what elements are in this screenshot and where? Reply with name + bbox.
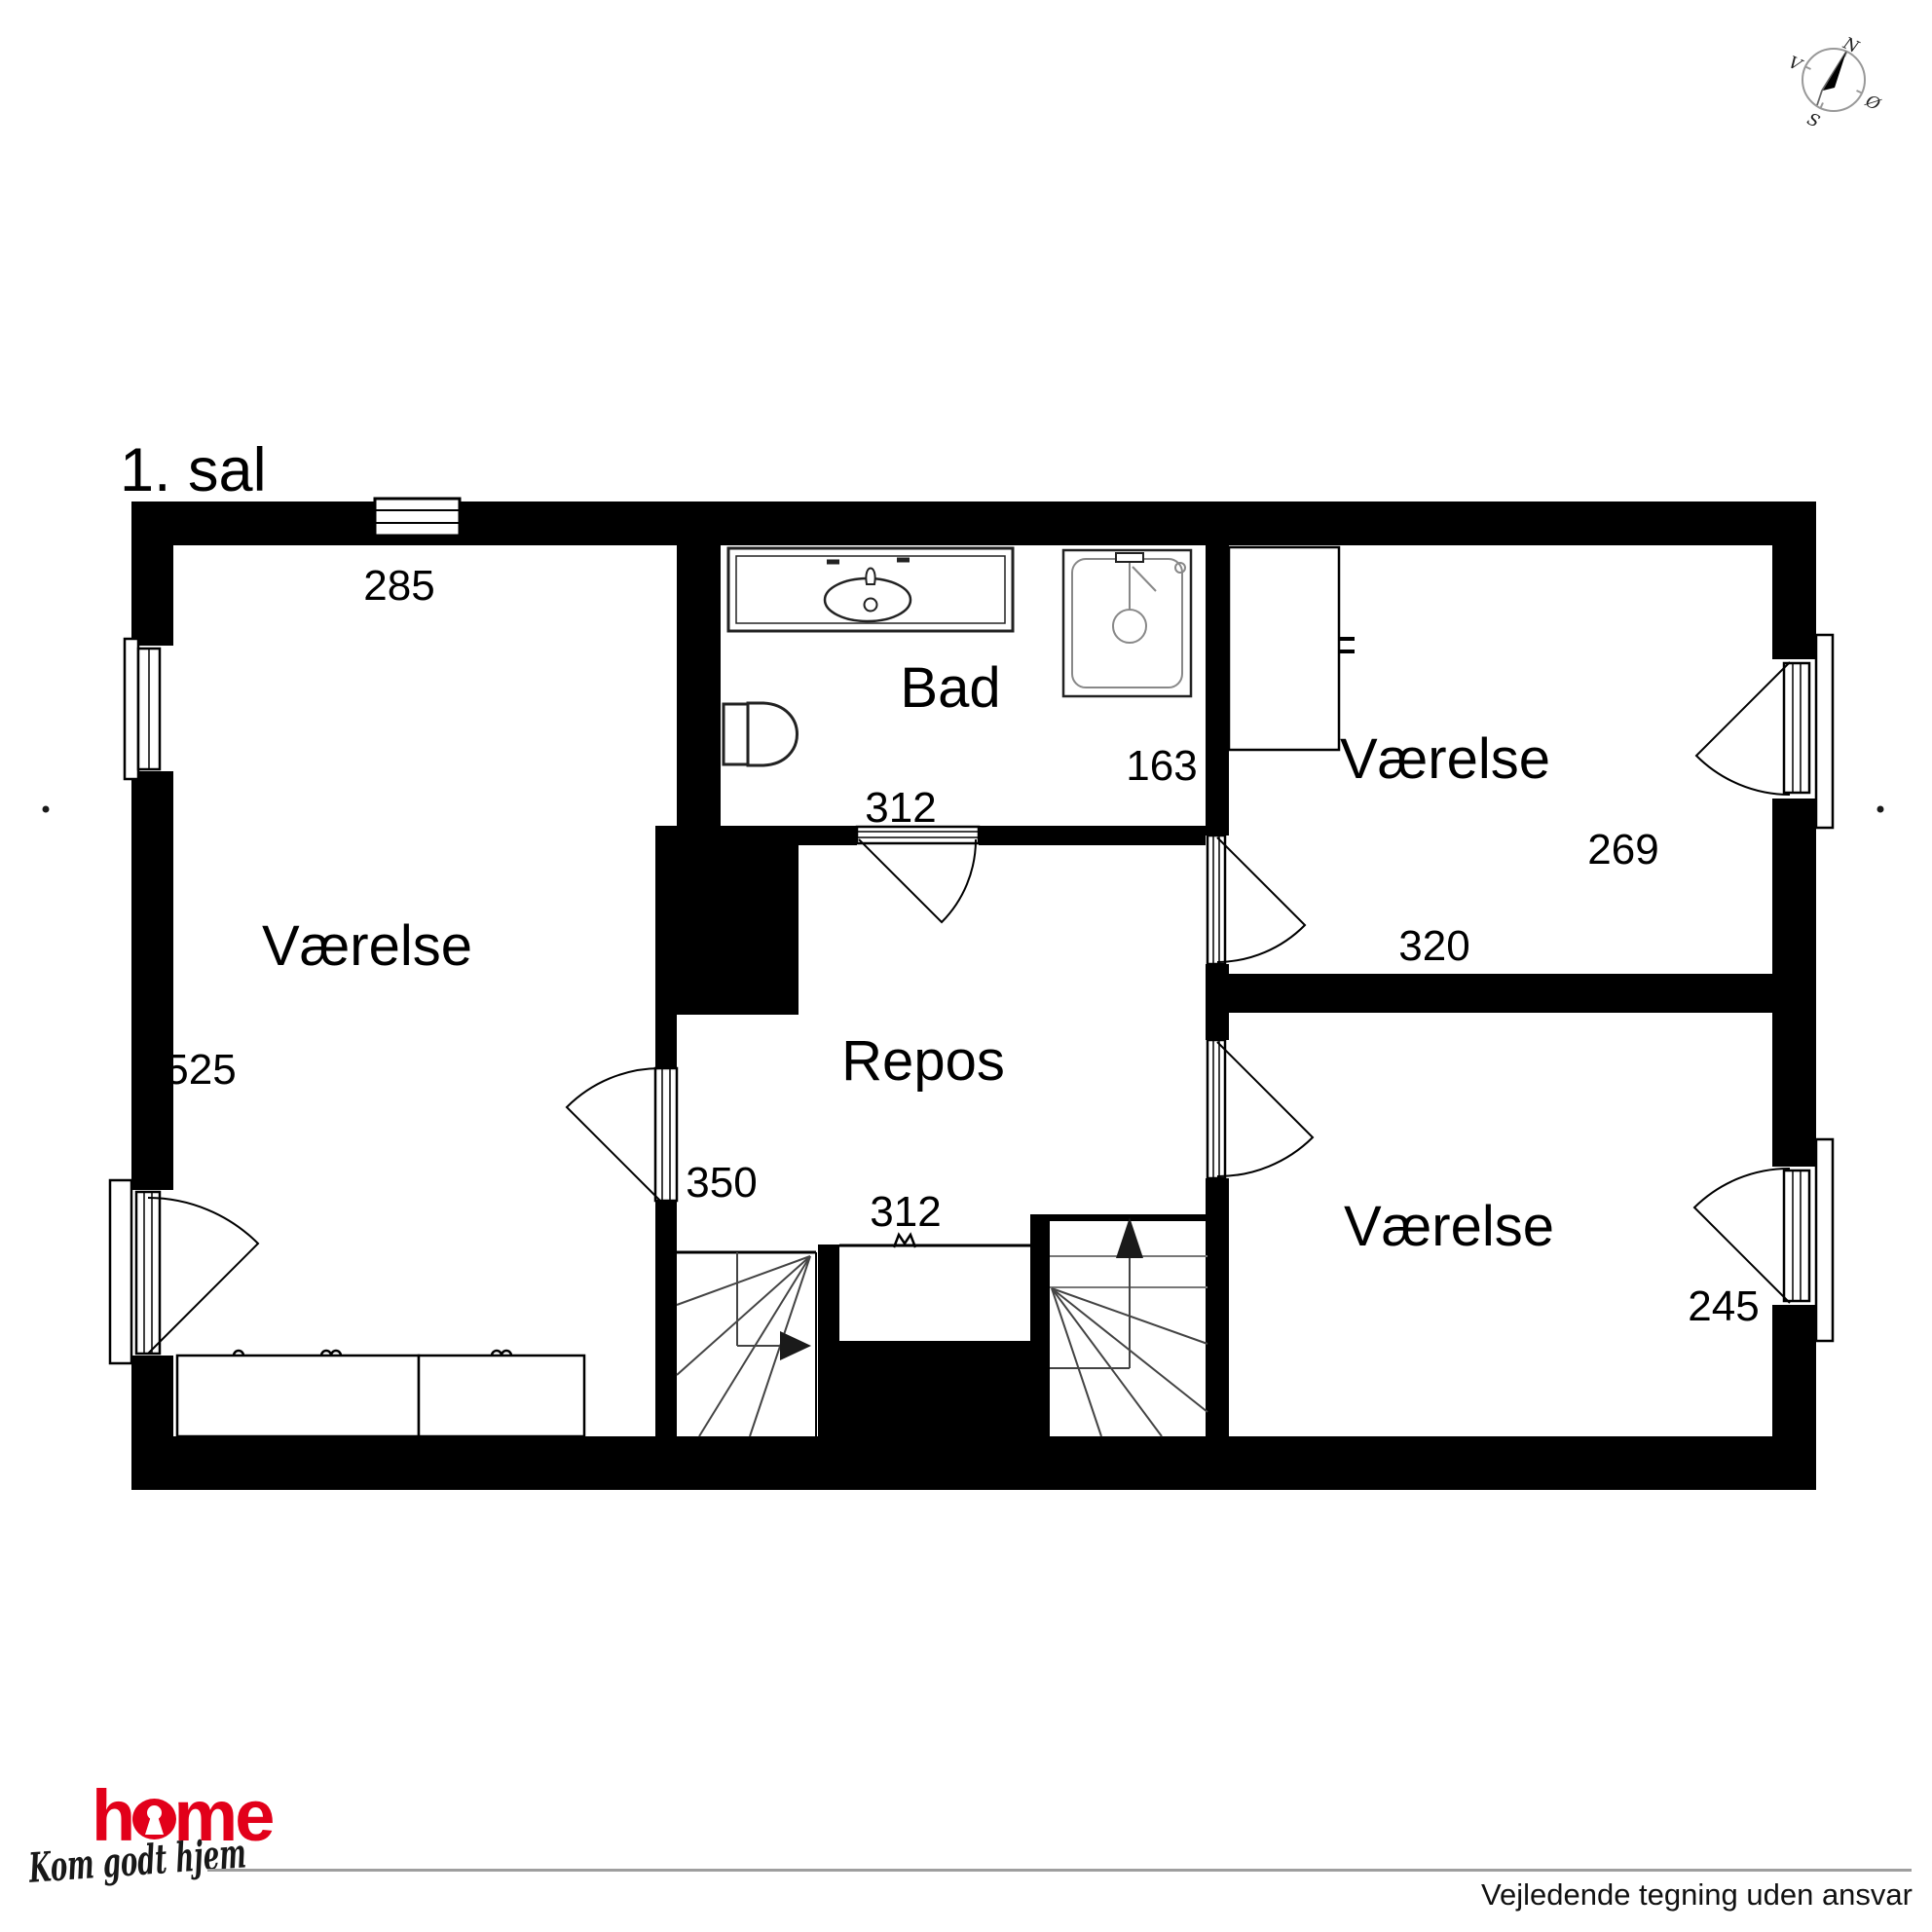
room-label: Værelse	[1340, 727, 1550, 791]
compass-n: N	[1839, 33, 1863, 57]
door-swing-arc	[1217, 1042, 1313, 1176]
dim-label: 269	[1587, 826, 1658, 873]
stair-direction-arrow	[780, 1331, 811, 1360]
wardrobe-top-right-room	[1229, 547, 1355, 750]
wardrobe-left-room	[177, 1351, 584, 1436]
wall-segment	[655, 1015, 677, 1068]
toilet	[724, 703, 798, 765]
wall-segment	[818, 1341, 1030, 1490]
wall-segment	[1772, 799, 1816, 1167]
dim-label: 320	[1398, 922, 1469, 970]
page-marks	[43, 806, 1884, 813]
wall-segment	[1206, 545, 1229, 836]
wall-segment	[131, 771, 173, 1190]
walls	[131, 502, 1816, 1490]
room-label: Værelse	[1344, 1195, 1554, 1258]
wall-segment	[677, 545, 721, 826]
window-left	[125, 639, 173, 779]
shaft-block	[655, 826, 799, 1015]
dim-label: 163	[1126, 742, 1197, 790]
sink-vanity	[728, 548, 1013, 631]
wall-segment	[1772, 502, 1816, 659]
registration-dot	[1877, 806, 1884, 813]
dim-label: 525	[165, 1046, 236, 1094]
wall-segment	[1206, 1178, 1229, 1490]
door-swing-arc	[859, 839, 976, 922]
door-top-right-room	[1207, 836, 1305, 964]
compass-rose: N V S Ø	[1785, 33, 1883, 131]
dim-label: 245	[1688, 1282, 1759, 1330]
dim-label: 312	[865, 784, 936, 832]
stair-left	[677, 1252, 816, 1436]
door-swing-arc	[1217, 837, 1305, 962]
door-swing-arc	[567, 1068, 660, 1201]
door-bottom-right-room	[1207, 1040, 1313, 1178]
wall-segment	[655, 1201, 677, 1436]
window-top	[375, 499, 460, 536]
bath-door	[857, 827, 979, 922]
floorplan-drawing: 1. sal Værelse 285 525 Bad 163 312 Repos…	[0, 0, 1932, 1932]
wall-segment	[1030, 1214, 1050, 1490]
stair-right	[1050, 1217, 1207, 1436]
compass-o: Ø	[1862, 92, 1884, 116]
door-swing-arc	[148, 1198, 258, 1354]
dim-label: 312	[870, 1188, 941, 1236]
compass-s: S	[1803, 109, 1822, 131]
interior-door-left-room	[567, 1068, 677, 1201]
wall-segment	[1050, 1214, 1207, 1221]
room-label: Repos	[841, 1029, 1005, 1093]
floorplan-page: 1. sal Værelse 285 525 Bad 163 312 Repos…	[0, 0, 1932, 1932]
room-label: Værelse	[262, 914, 472, 978]
door-swing-arc	[1696, 662, 1790, 795]
stair-landing	[839, 1235, 1030, 1247]
stair-direction-arrow	[1116, 1217, 1143, 1258]
floor-title: 1. sal	[120, 436, 267, 504]
wall-segment	[1206, 974, 1772, 1013]
exterior-door-left	[110, 1180, 258, 1363]
wall-segment	[131, 502, 173, 646]
faucet-icon	[866, 569, 874, 585]
room-label: Bad	[900, 656, 1000, 720]
dim-label: 350	[686, 1159, 757, 1207]
registration-dot	[43, 806, 50, 813]
toilet-bowl	[748, 703, 798, 765]
footer-divider	[207, 1869, 1912, 1872]
wall-segment	[979, 826, 1206, 845]
dim-label: 285	[363, 562, 434, 610]
shower	[1063, 550, 1191, 696]
disclaimer-text: Vejledende tegning uden ansvar	[1481, 1877, 1913, 1913]
